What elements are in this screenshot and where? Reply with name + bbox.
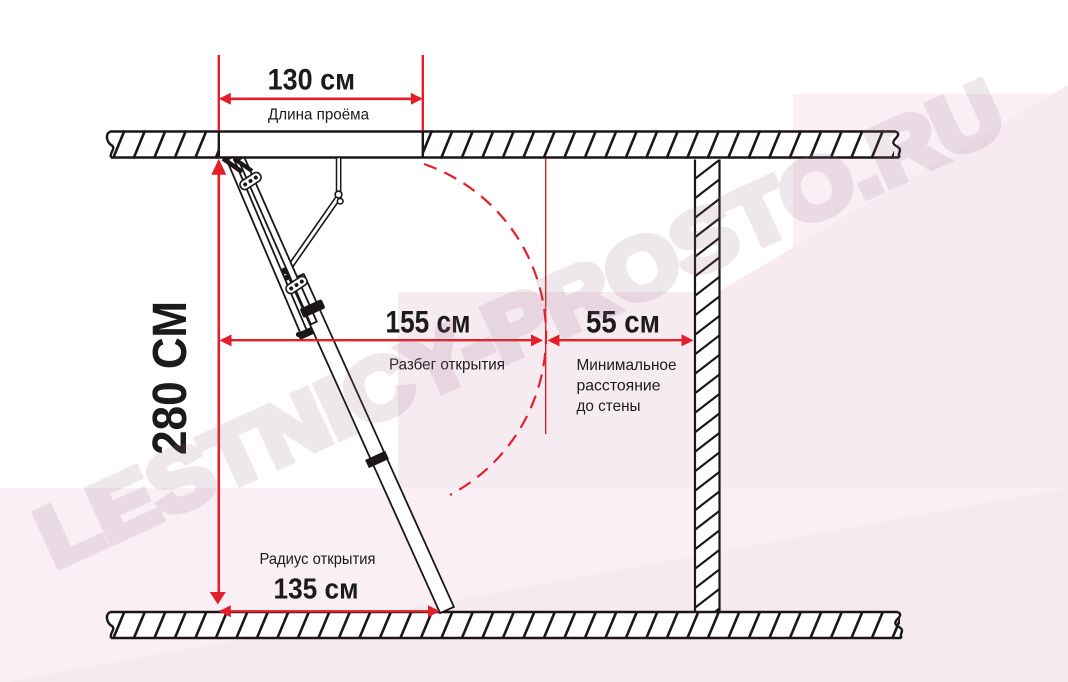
svg-text:до стены: до стены bbox=[577, 398, 641, 415]
svg-text:Радиус открытия: Радиус открытия bbox=[260, 551, 376, 568]
svg-text:135 см: 135 см bbox=[274, 574, 359, 606]
svg-text:расстояние: расстояние bbox=[577, 378, 661, 395]
svg-text:Минимальное: Минимальное bbox=[577, 357, 677, 374]
svg-text:130 см: 130 см bbox=[268, 64, 356, 97]
svg-text:Длина проёма: Длина проёма bbox=[268, 107, 369, 124]
